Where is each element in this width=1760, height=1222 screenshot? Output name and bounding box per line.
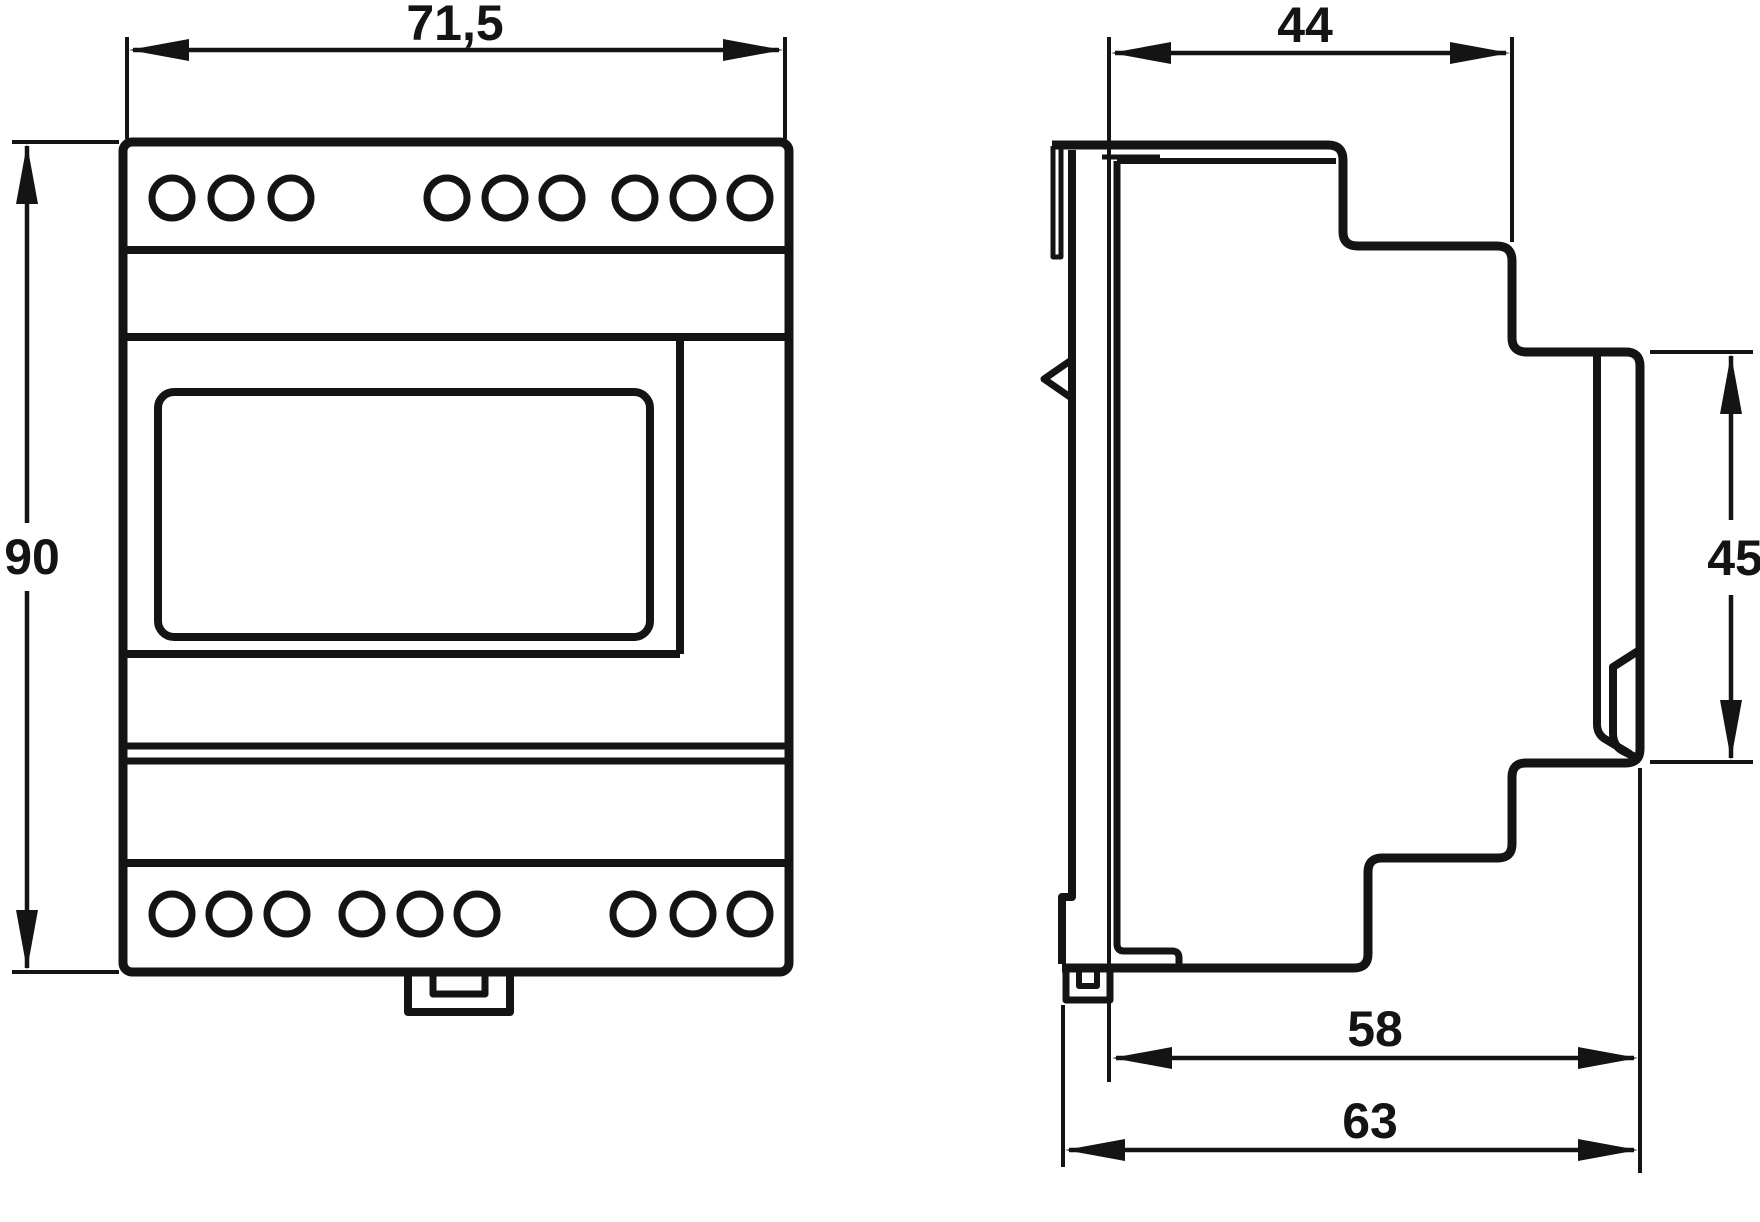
dimension-width-71-5: 71,5 [127,0,785,139]
side-rear-wall [1062,150,1072,964]
terminal-screw [613,894,653,934]
dim-height-label: 90 [4,529,60,585]
display-window [158,392,650,637]
dimension-height-90: 90 [4,142,119,972]
terminal-screw [673,894,713,934]
arrow-up-icon [16,144,38,204]
front-terminals-top [152,178,770,218]
arrow-right-icon [1578,1047,1638,1069]
terminal-screw [485,178,525,218]
arrow-down-icon [1720,700,1742,760]
dimension-drawing: 71,5 90 44 45 58 [0,0,1760,1222]
terminal-screw [730,894,770,934]
front-view-outline [123,142,789,972]
dimension-panel-height-45: 45 [1650,352,1760,762]
terminal-screw [673,178,713,218]
terminal-screw [211,178,251,218]
arrow-down-icon [16,910,38,970]
dim-body-depth-label: 44 [1277,0,1333,53]
arrow-up-icon [1720,354,1742,414]
technical-drawing-page: 71,5 90 44 45 58 [0,0,1760,1222]
terminal-screw [542,178,582,218]
terminal-screw [457,894,497,934]
side-inner-rear-wall [1117,161,1179,966]
terminal-screw [427,178,467,218]
terminal-screw [615,178,655,218]
terminal-screw [209,894,249,934]
terminal-screw [271,178,311,218]
terminal-screw [267,894,307,934]
arrow-right-icon [1578,1139,1638,1161]
side-view-outline [1052,145,1640,968]
arrow-left-icon [1112,1047,1172,1069]
terminal-screw [730,178,770,218]
side-view [1044,145,1640,1000]
terminal-screw [342,894,382,934]
terminal-screw [152,178,192,218]
side-din-foot [1066,968,1110,1000]
side-rear-hook-strip [1053,146,1061,257]
arrow-right-icon [1450,42,1510,64]
side-clip-spring [1044,361,1070,397]
arrow-left-icon [1111,42,1171,64]
arrow-left-icon [1065,1139,1125,1161]
dim-depth-58-label: 58 [1347,1001,1403,1057]
front-view [123,142,789,1012]
terminal-screw [152,894,192,934]
front-terminals-bottom [152,894,770,934]
arrow-left-icon [129,39,189,61]
terminal-screw [400,894,440,934]
side-front-latch [1613,651,1638,757]
dim-width-label: 71,5 [406,0,503,51]
front-din-foot [408,972,510,1012]
dim-front-panel-height-label: 45 [1707,530,1760,586]
arrow-right-icon [723,39,783,61]
dim-total-depth-label: 63 [1342,1093,1398,1149]
